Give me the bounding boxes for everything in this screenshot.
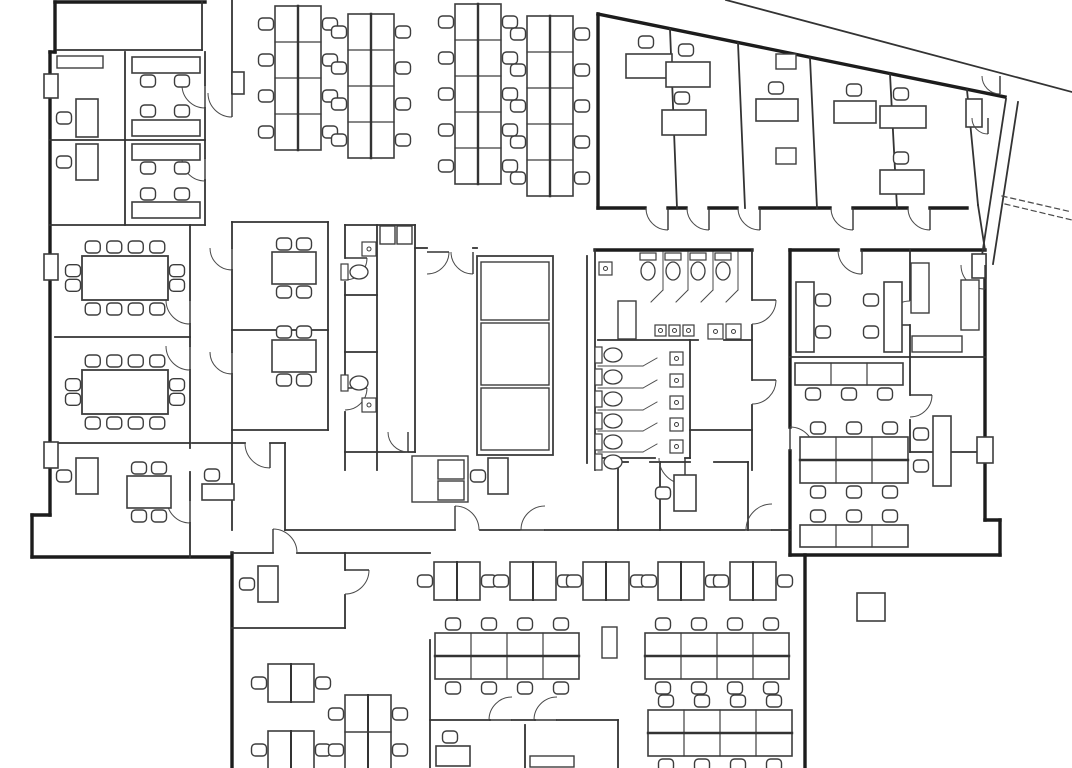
door-swing-arc — [210, 248, 232, 270]
chair — [439, 16, 454, 28]
desk — [933, 416, 951, 486]
chair — [132, 462, 147, 474]
chair — [66, 379, 81, 391]
chair — [240, 578, 255, 590]
chair — [277, 238, 292, 250]
chair — [175, 75, 190, 87]
bench-desks-horizontal — [648, 695, 792, 768]
chair — [205, 469, 220, 481]
door — [831, 208, 853, 230]
door-swing-arc — [521, 506, 545, 530]
door — [245, 443, 270, 468]
chair — [503, 160, 518, 172]
toilet-bowl — [604, 370, 622, 384]
chair — [767, 695, 782, 707]
desk — [258, 566, 278, 602]
toilet-tank — [715, 253, 731, 260]
sink-basin — [726, 324, 741, 339]
dashed-line — [1005, 204, 1072, 220]
sink-basin — [670, 418, 683, 431]
wall-interior — [981, 99, 1006, 262]
door-swing-arc — [451, 252, 473, 274]
chair — [252, 677, 267, 689]
sink-basin — [670, 374, 683, 387]
chair — [277, 326, 292, 338]
chair — [864, 326, 879, 338]
chair — [679, 44, 694, 56]
chair — [107, 417, 122, 429]
wall-interior — [738, 43, 745, 208]
chair — [692, 682, 707, 694]
toilet-icon — [665, 253, 681, 280]
sink-icon — [669, 325, 680, 336]
toilet-bowl — [716, 262, 730, 280]
chair — [259, 90, 274, 102]
chair — [864, 294, 879, 306]
chair — [842, 388, 857, 400]
chair — [150, 417, 165, 429]
door — [752, 300, 776, 324]
chair — [141, 162, 156, 174]
door-swing-arc — [838, 250, 862, 274]
toilet-tank — [595, 347, 602, 363]
chair — [107, 303, 122, 315]
chair — [170, 379, 185, 391]
chair — [511, 172, 526, 184]
toilet-icon — [595, 369, 622, 385]
toilet-tank — [341, 264, 348, 280]
toilet-icon — [341, 375, 368, 391]
door-swing-arc — [245, 443, 270, 468]
floor-plan-page — [0, 0, 1072, 768]
cabinet — [911, 263, 929, 313]
desk — [132, 120, 200, 136]
bench-desks-vertical — [439, 4, 518, 184]
chair — [329, 708, 344, 720]
toilet-tank — [595, 369, 602, 385]
toilet-icon — [595, 434, 622, 450]
sink-icon — [708, 324, 723, 339]
chair — [316, 677, 331, 689]
desk — [132, 144, 200, 160]
chair — [277, 286, 292, 298]
bench-desks-horizontal — [435, 618, 579, 694]
cabinet — [602, 627, 617, 658]
toilet-bowl — [604, 414, 622, 428]
door — [210, 352, 232, 374]
chair — [692, 618, 707, 630]
chair — [575, 136, 590, 148]
chair — [806, 388, 821, 400]
toilet-icon — [690, 253, 706, 280]
chair — [482, 618, 497, 630]
chair — [731, 759, 746, 768]
chair — [847, 84, 862, 96]
chair — [575, 172, 590, 184]
desk — [202, 484, 234, 500]
sink-icon — [655, 325, 666, 336]
sink-basin — [670, 440, 683, 453]
chair — [297, 326, 312, 338]
door-swing-arc — [210, 352, 232, 374]
chair — [883, 422, 898, 434]
toilet-tank — [341, 375, 348, 391]
door — [838, 250, 862, 274]
chair — [503, 88, 518, 100]
chair — [764, 682, 779, 694]
table-surface — [272, 252, 316, 284]
desk-pair — [494, 562, 573, 600]
wall-pilaster — [44, 254, 58, 280]
chair — [107, 355, 122, 367]
desk — [436, 746, 470, 766]
chair — [170, 393, 185, 405]
chair — [418, 575, 433, 587]
door — [208, 93, 232, 117]
desk — [488, 458, 508, 494]
table-surface — [272, 340, 316, 372]
desk — [666, 62, 710, 87]
sink-basin — [362, 242, 376, 256]
chair — [894, 88, 909, 100]
chair — [393, 708, 408, 720]
stall-partition — [726, 290, 738, 302]
door-swing-arc — [489, 697, 512, 720]
chair — [175, 162, 190, 174]
stall-partition — [643, 402, 657, 410]
door — [455, 506, 479, 530]
chair — [152, 510, 167, 522]
door-swing-arc — [752, 380, 776, 404]
chair — [714, 575, 729, 587]
door-swing-arc — [388, 432, 408, 452]
chair — [66, 279, 81, 291]
toilet-icon — [595, 391, 622, 407]
chair — [57, 112, 72, 124]
chair — [252, 744, 267, 756]
chair — [329, 744, 344, 756]
door — [521, 506, 545, 530]
chair — [811, 486, 826, 498]
chair — [695, 695, 710, 707]
chair — [170, 279, 185, 291]
door — [646, 208, 668, 230]
elevator-cab — [481, 262, 549, 320]
toilet-bowl — [691, 262, 705, 280]
door-swing-arc — [910, 395, 932, 417]
desk-pair — [714, 562, 793, 600]
sink-icon — [599, 262, 612, 275]
chair — [642, 575, 657, 587]
toilet-bowl — [604, 392, 622, 406]
meeting-table-4 — [272, 326, 316, 386]
door — [166, 346, 190, 370]
desk — [662, 110, 706, 135]
chair — [85, 355, 100, 367]
wall-interior — [726, 0, 1072, 92]
toilet-tank — [595, 454, 602, 470]
toilet-bowl — [641, 262, 655, 280]
chair — [656, 618, 671, 630]
desk — [834, 101, 876, 123]
door — [746, 504, 772, 530]
door-swing-arc — [646, 208, 668, 230]
desk — [756, 99, 798, 121]
chair — [396, 62, 411, 74]
cabinet — [438, 460, 464, 479]
table-surface — [82, 256, 168, 300]
chair — [575, 28, 590, 40]
chair — [259, 18, 274, 30]
elevator-cab — [481, 388, 549, 450]
chair — [393, 744, 408, 756]
chair — [847, 422, 862, 434]
toilet-bowl — [350, 376, 368, 390]
sink-basin — [599, 262, 612, 275]
toilet-bowl — [604, 348, 622, 362]
door — [345, 570, 369, 594]
bench-desks-vertical — [511, 16, 590, 196]
door — [752, 380, 776, 404]
chair — [567, 575, 582, 587]
wall-pilaster — [966, 99, 982, 127]
desk — [76, 144, 98, 180]
door — [687, 208, 709, 230]
bench-surface — [795, 363, 903, 385]
wall-pilaster — [44, 442, 58, 468]
chair — [914, 428, 929, 440]
wall-pilaster — [232, 72, 244, 94]
door — [908, 208, 930, 230]
cabinet — [961, 280, 979, 330]
chair — [297, 374, 312, 386]
sink-icon — [670, 440, 683, 453]
chair — [728, 682, 743, 694]
door — [489, 697, 512, 720]
door — [534, 697, 557, 720]
chair — [767, 759, 782, 768]
meeting-table-4 — [272, 238, 316, 298]
toilet-icon — [715, 253, 731, 280]
chair — [150, 355, 165, 367]
wall-pilaster — [972, 254, 986, 278]
cabinet — [380, 226, 395, 244]
sink-basin — [683, 325, 694, 336]
stall-partition — [643, 358, 657, 366]
toilet-bowl — [666, 262, 680, 280]
sink-basin — [670, 352, 683, 365]
chair — [332, 134, 347, 146]
desk — [884, 282, 902, 352]
toilet-tank — [640, 253, 656, 260]
chair — [57, 470, 72, 482]
chair — [575, 64, 590, 76]
door — [388, 432, 408, 452]
toilet-bowl — [604, 435, 622, 449]
chair — [511, 28, 526, 40]
cabinet — [618, 301, 636, 339]
chair — [175, 188, 190, 200]
chair — [811, 422, 826, 434]
desk — [880, 170, 924, 194]
door-swing-arc — [427, 252, 449, 274]
chair — [847, 510, 862, 522]
toilet-bowl — [350, 265, 368, 279]
chair — [170, 265, 185, 277]
cabinet — [57, 56, 103, 68]
chair — [297, 286, 312, 298]
chair — [141, 75, 156, 87]
chair — [894, 152, 909, 164]
sink-icon — [726, 324, 741, 339]
cabinet — [776, 54, 796, 69]
chair — [811, 510, 826, 522]
chair — [141, 105, 156, 117]
chair — [446, 682, 461, 694]
chair — [66, 393, 81, 405]
sink-icon — [670, 396, 683, 409]
chair — [396, 98, 411, 110]
bench-desks-vertical — [332, 14, 411, 158]
chair — [778, 575, 793, 587]
toilet-icon — [595, 413, 622, 429]
chair — [511, 64, 526, 76]
door — [427, 252, 449, 274]
desk-quad — [329, 695, 408, 768]
sink-icon — [670, 352, 683, 365]
chair — [128, 417, 143, 429]
chair — [511, 136, 526, 148]
door-swing-arc — [831, 208, 853, 230]
chair — [132, 510, 147, 522]
desk — [626, 54, 672, 78]
toilet-icon — [640, 253, 656, 280]
chair — [554, 618, 569, 630]
sink-icon — [683, 325, 694, 336]
chair — [518, 682, 533, 694]
chair — [259, 126, 274, 138]
sink-basin — [655, 325, 666, 336]
chair — [554, 682, 569, 694]
desk — [76, 458, 98, 494]
stall-partition — [651, 290, 663, 302]
wall-pilaster — [857, 593, 885, 621]
conference-table — [66, 355, 185, 429]
desk — [674, 475, 696, 511]
chair — [332, 62, 347, 74]
chair — [575, 100, 590, 112]
chair — [639, 36, 654, 48]
door — [738, 208, 760, 230]
chair — [883, 486, 898, 498]
chair — [128, 241, 143, 253]
chair — [914, 460, 929, 472]
chair — [152, 462, 167, 474]
table-surface — [127, 476, 171, 508]
chair — [128, 355, 143, 367]
chair — [764, 618, 779, 630]
stall-partition — [643, 444, 657, 452]
cabinet — [438, 481, 464, 500]
chair — [332, 98, 347, 110]
chair — [66, 265, 81, 277]
fixtures — [341, 242, 741, 470]
desk — [132, 202, 200, 218]
stall-partition — [643, 423, 657, 431]
desk-pair — [642, 562, 721, 600]
door-swing-arc — [166, 300, 190, 324]
cabinet — [912, 336, 962, 352]
door — [910, 395, 932, 417]
chair — [847, 486, 862, 498]
chair — [494, 575, 509, 587]
chair — [675, 92, 690, 104]
chair — [150, 303, 165, 315]
chair — [85, 417, 100, 429]
chair — [503, 52, 518, 64]
toilet-tank — [690, 253, 706, 260]
door-swing-arc — [166, 346, 190, 370]
sink-basin — [670, 396, 683, 409]
chair — [396, 26, 411, 38]
chair — [518, 618, 533, 630]
sink-icon — [670, 374, 683, 387]
desk-pair — [252, 664, 331, 702]
door — [451, 252, 473, 274]
door-swing-arc — [746, 504, 772, 530]
wall-interior — [810, 58, 817, 208]
door — [273, 529, 297, 553]
door-swing-arc — [738, 208, 760, 230]
chair — [443, 731, 458, 743]
desk — [796, 282, 814, 352]
toilet-tank — [595, 391, 602, 407]
wall-pilaster — [977, 437, 993, 463]
chair — [878, 388, 893, 400]
chair — [85, 303, 100, 315]
stall-partition — [676, 290, 688, 302]
chair — [297, 238, 312, 250]
desk — [132, 57, 200, 73]
wall-interior — [993, 102, 1018, 264]
toilet-tank — [595, 434, 602, 450]
chair — [728, 618, 743, 630]
chair — [396, 134, 411, 146]
door — [210, 248, 232, 270]
chair — [107, 241, 122, 253]
bench-desks-vertical — [259, 6, 338, 150]
bench-desks-horizontal — [800, 422, 908, 498]
toilet-tank — [665, 253, 681, 260]
sink-icon — [362, 242, 376, 256]
toilet-icon — [341, 264, 368, 280]
chair — [175, 105, 190, 117]
chair — [503, 16, 518, 28]
stall-partition — [701, 290, 713, 302]
cabinet — [397, 226, 412, 244]
chair — [511, 100, 526, 112]
door-swing-arc — [455, 506, 479, 530]
sink-icon — [362, 398, 376, 412]
chair — [439, 52, 454, 64]
toilet-icon — [595, 347, 622, 363]
chair — [277, 374, 292, 386]
chair — [769, 82, 784, 94]
floor-plan-canvas — [0, 0, 1072, 768]
toilet-tank — [595, 413, 602, 429]
door — [166, 300, 190, 324]
chair — [656, 682, 671, 694]
